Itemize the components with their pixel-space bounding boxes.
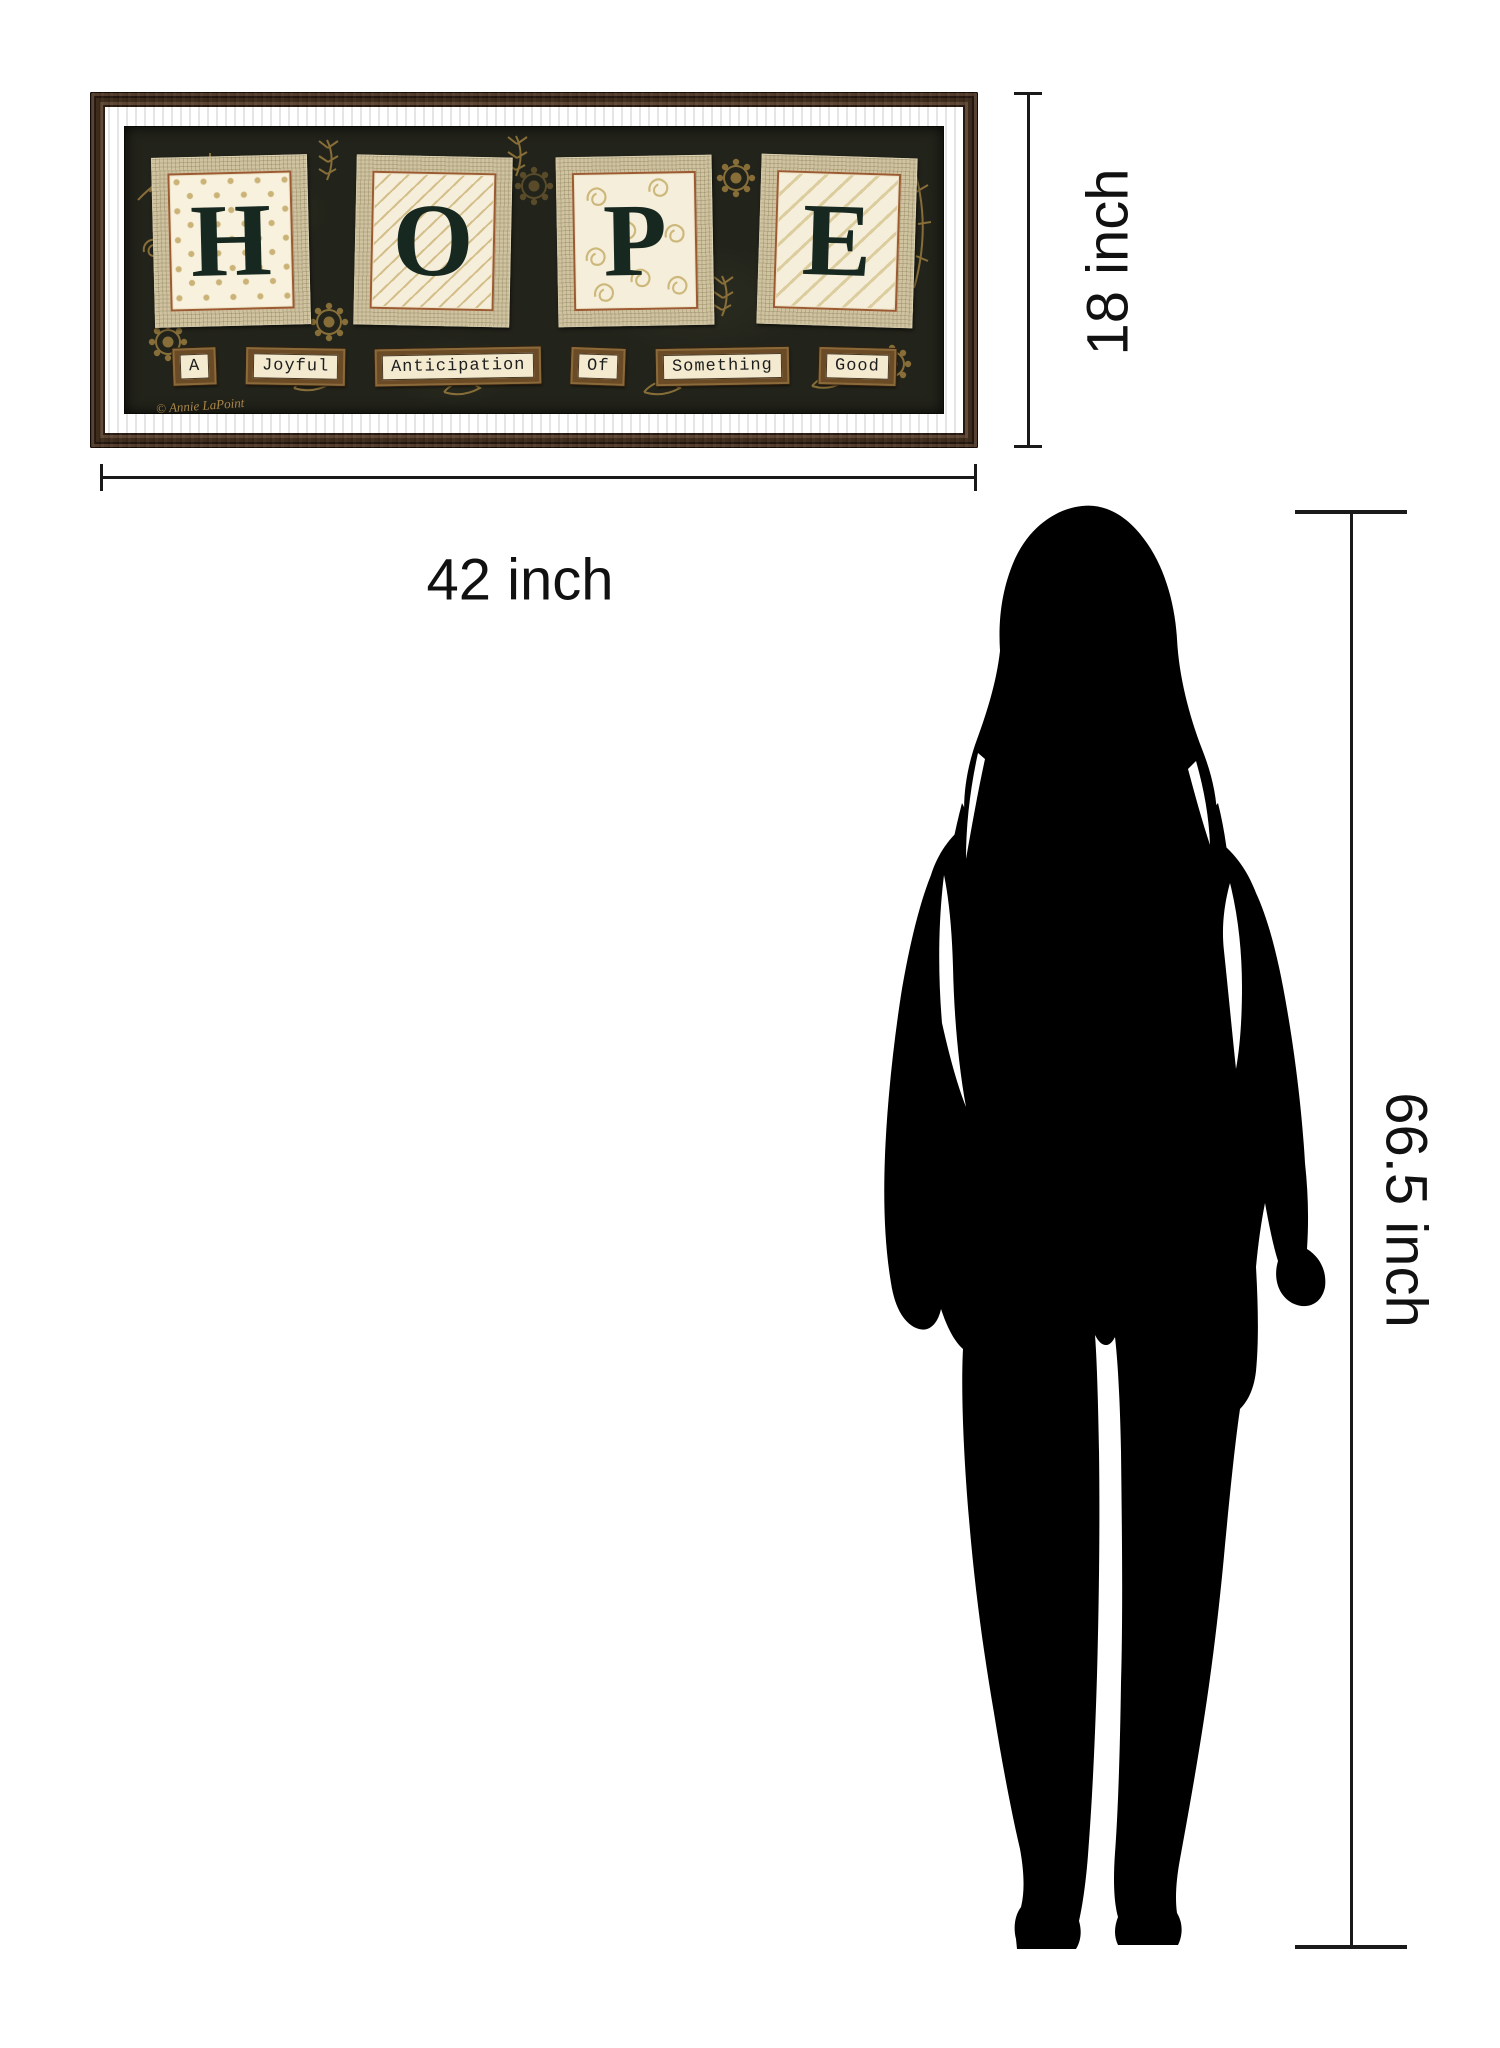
width-dimension-line [100,476,977,479]
figure-dimension-line [1350,512,1353,1949]
caption-plaque: A [172,347,216,385]
figure-height-label: 66.5 inch [1373,1092,1440,1327]
height-dimension-line [1027,93,1030,447]
caption-word: Of [578,353,619,379]
caption-plaque: Good [818,347,896,386]
letter-tile-p: P [556,155,715,328]
height-dimension-top-cap [1014,92,1042,95]
tile-letter: P [602,188,667,293]
tile-paper-polka-dots: H [167,171,294,312]
figure-dimension-bottom-cap [1295,1945,1407,1949]
tile-letter: H [189,188,272,294]
caption-plaque: Joyful [245,347,345,386]
width-dimension-label: 42 inch [426,547,613,614]
tile-letter: O [391,188,474,294]
caption-plaques-row: A Joyful Anticipation Of Something Good [124,348,944,385]
woman-silhouette-icon [878,503,1335,1953]
caption-plaque: Anticipation [375,347,542,387]
tile-paper-stripes-wide: E [773,170,901,312]
art-canvas: H O [124,126,944,414]
caption-word: Joyful [253,353,339,379]
tile-paper-stripes: O [370,171,497,312]
caption-plaque: Something [655,347,788,386]
tile-paper-swirls: P [572,171,698,311]
caption-word: Good [825,353,888,380]
product-dimensions-diagram: H O [0,0,1500,2048]
width-dimension-left-tick [100,464,103,491]
figure-dimension-top-cap [1295,510,1407,514]
tile-letter: E [801,188,874,294]
letter-tiles-row: H O [124,156,944,326]
width-dimension-right-tick [974,464,977,491]
letter-tile-o: O [353,154,513,327]
caption-word: A [179,353,209,379]
letter-tile-e: E [756,154,917,329]
caption-word: Anticipation [382,353,535,381]
height-dimension-bottom-cap [1014,445,1042,448]
caption-plaque: Of [571,347,627,386]
letter-tile-h: H [151,154,311,328]
framed-artwork: H O [90,92,978,448]
height-dimension-label: 18 inch [1075,168,1142,355]
caption-word: Something [663,353,782,380]
